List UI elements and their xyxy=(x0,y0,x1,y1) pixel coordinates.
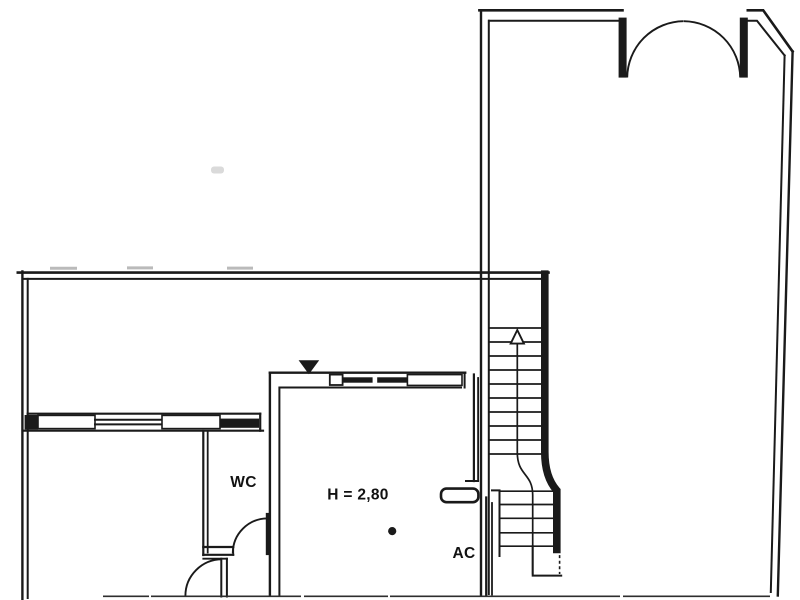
wc-room: WC xyxy=(203,431,267,555)
terrace-topright-wall-inner xyxy=(748,21,785,56)
window-jamb-block xyxy=(330,375,343,385)
main-room: H = 2,80 AC xyxy=(270,360,492,595)
terrace-right-wall-outer xyxy=(778,52,793,596)
wall-pilaster xyxy=(441,489,478,503)
floor-plan-canvas: H = 2,80 AC WC xyxy=(0,0,800,600)
wc-label: WC xyxy=(230,474,256,491)
upper-left-room xyxy=(18,167,549,600)
ceiling-height-label: H = 2,80 xyxy=(327,487,388,504)
floor-plan-drawing: H = 2,80 AC WC xyxy=(0,0,800,600)
terrace-room xyxy=(479,10,792,595)
hall-wall-stub xyxy=(221,559,227,597)
stair-right-wall xyxy=(545,274,557,549)
window-dark-panel-left xyxy=(343,377,373,382)
window-sill-left xyxy=(38,415,95,428)
floor-dot-marker-icon xyxy=(388,527,396,535)
hall-door-swing-arc xyxy=(185,559,222,596)
hall-doorway xyxy=(185,559,227,597)
stair-up-arrow-icon xyxy=(511,330,524,344)
ac-label: AC xyxy=(453,545,476,562)
window-sill-block xyxy=(407,375,462,386)
window-glazing-lines xyxy=(95,420,162,425)
wc-door-swing-arc xyxy=(233,518,268,553)
double-door-left-leaf xyxy=(619,18,627,78)
wall-pier xyxy=(25,415,38,430)
wall-pier-solid xyxy=(220,419,259,428)
window-sill-right xyxy=(162,415,220,428)
terrace-right-wall-inner xyxy=(771,56,785,593)
double-door-right-swing-arc xyxy=(684,21,740,77)
stair-lower-left-edge xyxy=(492,490,500,556)
stair-walking-line xyxy=(517,344,532,574)
terrace-topright-wall-outer xyxy=(748,10,793,51)
stair-lower-treads xyxy=(500,491,558,546)
scan-speck xyxy=(211,167,224,174)
stair-upper-treads xyxy=(489,328,541,454)
window-dark-panel-right xyxy=(377,377,407,382)
staircase xyxy=(489,274,561,575)
double-door-right-leaf xyxy=(740,18,748,78)
double-door-left-swing-arc xyxy=(627,21,683,77)
